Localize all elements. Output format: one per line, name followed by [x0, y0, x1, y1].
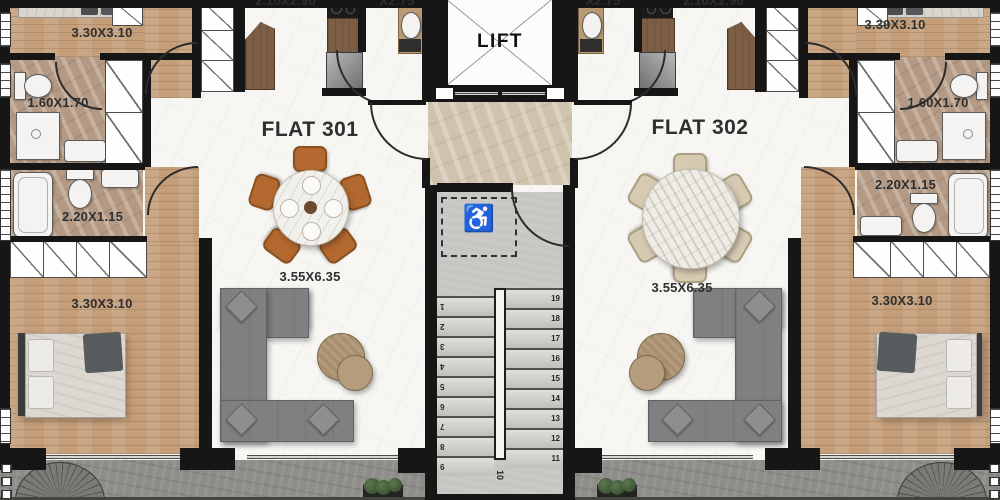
stair-tread: 4: [437, 356, 495, 376]
stairs-stringer: [494, 288, 506, 460]
living-dim-label-left: 3.55X6.35: [260, 269, 360, 284]
window: [990, 12, 1000, 47]
wardrobe-cell: [105, 60, 143, 113]
sink: [896, 140, 938, 162]
wall: [945, 53, 990, 60]
wall: [10, 236, 147, 242]
bathtub: [948, 173, 988, 239]
lift-door-panel: [436, 88, 453, 99]
stair-tread: 18: [505, 308, 563, 328]
window: [990, 63, 1000, 98]
plant-leaf: [388, 478, 402, 492]
bed-bottom-left: [18, 333, 124, 416]
stair-tread-number: 2: [440, 322, 444, 331]
door-arc-utility-left: [336, 50, 388, 105]
wall: [10, 53, 55, 60]
railing-post: [1, 464, 12, 473]
lift-wall-right: [552, 0, 578, 85]
living-dim-label-right: 3.55X6.35: [632, 280, 732, 295]
bathtub-inner: [18, 177, 48, 233]
wall: [180, 448, 235, 470]
stairwell-wall-bottom: [425, 494, 575, 500]
railing-post: [989, 464, 1000, 473]
toilet-bowl: [68, 179, 92, 209]
stairs-flight-down: 191817161514131211: [505, 288, 563, 450]
door-arc-utility-right: [614, 50, 666, 105]
utility-cabinet: [399, 39, 421, 52]
sliding-door: [46, 455, 180, 459]
wardrobe-cell: [923, 240, 957, 278]
wall: [755, 0, 766, 92]
sliding-door: [247, 455, 398, 459]
stair-tread-number: 8: [440, 442, 444, 451]
stairs-flight-up: 123456789: [437, 296, 495, 458]
railing-post: [1, 477, 12, 486]
plate: [302, 222, 321, 241]
shower-drain: [963, 129, 973, 139]
shower-tray: [942, 112, 986, 160]
wall: [358, 0, 366, 52]
stair-tread-number: 7: [440, 422, 444, 431]
stair-tread-number: 15: [551, 374, 560, 383]
stair-tread: 13: [505, 408, 563, 428]
stair-tread-number: 18: [551, 314, 560, 323]
dining-table-right: [642, 169, 740, 269]
bathroom-top-dim-label-right: 1.60X1.70: [892, 95, 984, 110]
wardrobe-cell: [766, 30, 799, 61]
kitchen-tall-cabinet-right: [727, 22, 757, 90]
wall: [634, 0, 642, 52]
hall-wall-right: [570, 158, 578, 188]
stairs-landing-number: 10: [495, 470, 505, 480]
sink: [860, 216, 902, 236]
bed-throw: [83, 332, 124, 374]
kitchen-cabinet-right: [639, 18, 675, 54]
lift-door-track: [502, 92, 545, 95]
bathroom-mid-dim-label-left: 2.20X1.15: [45, 209, 140, 224]
utility-cabinet: [580, 39, 602, 52]
kitchen-tall-cabinet-left: [245, 22, 275, 90]
stair-tread: 6: [437, 396, 495, 416]
bedroom-bottom-dim-label-left: 3.30X3.10: [52, 296, 152, 311]
bed-pillow: [28, 376, 54, 409]
bed-pillow: [946, 376, 972, 409]
door-arc-entry-right: [575, 103, 632, 160]
window: [0, 408, 11, 444]
wardrobe-bath-left: [105, 60, 143, 165]
wall: [10, 163, 145, 170]
window: [0, 169, 11, 241]
wall: [234, 0, 245, 92]
wardrobe-cell: [105, 112, 143, 165]
stair-tread-number: 1: [440, 302, 444, 311]
wardrobe-cell: [201, 60, 234, 92]
wardrobe-cell: [857, 60, 895, 113]
wheelchair-zone: ♿: [441, 197, 517, 257]
sink: [64, 140, 106, 162]
bathtub: [13, 172, 53, 238]
bathroom-mid-dim-label-right: 2.20X1.15: [858, 177, 953, 192]
wardrobe-row-left: [10, 240, 147, 278]
stair-tread: 12: [505, 428, 563, 448]
wall: [765, 448, 820, 470]
stair-tread: 8: [437, 436, 495, 456]
stair-tread-number: 12: [551, 434, 560, 443]
window: [990, 408, 1000, 444]
wardrobe-cell: [853, 240, 891, 278]
bed-throw: [877, 332, 918, 374]
wall: [572, 448, 602, 473]
centerpiece: [304, 201, 317, 214]
railing-post: [989, 490, 1000, 499]
wardrobe-bath-right: [857, 60, 895, 165]
coffee-table-right-small: [629, 355, 665, 391]
wardrobe-cell: [43, 240, 77, 278]
kitchen-dim-label-right: 2.10X2.90: [666, 0, 761, 8]
wardrobe-cell: [10, 240, 44, 278]
shower-drain: [31, 129, 41, 139]
stair-tread: 3: [437, 336, 495, 356]
sliding-door: [602, 455, 753, 459]
utility-counter-left: [398, 6, 424, 54]
bed-headboard: [18, 333, 25, 416]
railing-post: [1, 490, 12, 499]
stair-tread: 17: [505, 328, 563, 348]
dining-table-left: [273, 170, 349, 246]
window: [990, 169, 1000, 241]
toilet-bowl: [912, 203, 936, 233]
utility-dim-label-right: X2.75: [580, 0, 626, 8]
plate: [302, 176, 321, 195]
wardrobe-row-right: [853, 240, 990, 278]
lift-door-panel: [547, 88, 564, 99]
stair-tread-number: 4: [440, 362, 444, 371]
bathroom-top-dim-label-left: 1.60X1.70: [12, 95, 104, 110]
utility-counter-right: [578, 6, 604, 54]
stair-tread: 7: [437, 416, 495, 436]
stairs-landing: 10: [437, 458, 563, 492]
sofa-chaise: [265, 288, 309, 338]
stair-tread-number: 17: [551, 334, 560, 343]
lift-wall-left: [422, 0, 448, 85]
wardrobe-cell: [109, 240, 147, 278]
stair-tread: 1: [437, 296, 495, 316]
window: [0, 12, 11, 47]
coffee-table-left-small: [337, 355, 373, 391]
stair-tread: 19: [505, 288, 563, 308]
bedroom-top-dim-label-right: 3.30X3.10: [845, 17, 945, 32]
wardrobe-cell: [766, 60, 799, 92]
stair-tread: 16: [505, 348, 563, 368]
wardrobe-kitchen-left: [201, 0, 234, 92]
bed-pillow: [946, 339, 972, 372]
plate: [324, 199, 343, 218]
hall-wall-left: [422, 158, 430, 188]
stair-tread-number: 19: [551, 294, 560, 303]
bathtub-inner: [954, 178, 984, 234]
flat-name-left: FLAT 301: [240, 118, 380, 142]
entrance-hall-floor: [428, 102, 572, 185]
stair-tread: 2: [437, 316, 495, 336]
wardrobe-cell: [76, 240, 110, 278]
utility-sink: [401, 12, 421, 39]
stair-tread: 15: [505, 368, 563, 388]
dining-chair: [293, 146, 327, 172]
shower-tray: [16, 112, 60, 160]
stairwell-wall-top: [437, 183, 513, 192]
bedroom-top-dim-label-left: 3.30X3.10: [52, 25, 152, 40]
wardrobe-kitchen-right: [766, 0, 799, 92]
stair-tread-number: 6: [440, 402, 444, 411]
stair-tread-number: 5: [440, 382, 444, 391]
bed-bottom-right: [876, 333, 982, 416]
stair-tread-number: 3: [440, 342, 444, 351]
wardrobe-cell: [857, 112, 895, 165]
sofa-chaise: [693, 288, 737, 338]
wardrobe-cell: [956, 240, 990, 278]
stair-tread-number: 14: [551, 394, 560, 403]
wall: [855, 163, 990, 170]
lift-label: LIFT: [448, 31, 552, 53]
wall: [398, 448, 428, 473]
lift-door-band: [422, 85, 578, 102]
bedroom-bottom-dim-label-right: 3.30X3.10: [852, 293, 952, 308]
wall: [853, 236, 990, 242]
lift-door-track: [455, 92, 498, 95]
plant-leaf: [622, 478, 636, 492]
sink: [101, 169, 139, 188]
stair-tread-number: 16: [551, 354, 560, 363]
railing-post: [989, 477, 1000, 486]
floor-plan: LIFT ♿ 123456789 191817161514131211 10 2…: [0, 0, 1000, 500]
flat-name-right: FLAT 302: [630, 116, 770, 140]
bed-pillow: [28, 339, 54, 372]
utility-sink: [582, 12, 602, 39]
kitchen-dim-label-left: 2.10X2.90: [238, 0, 333, 8]
wardrobe-cell: [890, 240, 924, 278]
sliding-door: [820, 455, 954, 459]
wardrobe-cell: [201, 30, 234, 61]
wall: [788, 238, 801, 460]
stair-tread: 5: [437, 376, 495, 396]
plate: [280, 199, 299, 218]
window: [0, 63, 11, 98]
wall: [199, 238, 212, 460]
stair-tread-number: 13: [551, 414, 560, 423]
utility-dim-label-left: X2.75: [374, 0, 420, 8]
stair-tread: 14: [505, 388, 563, 408]
wheelchair-icon: ♿: [443, 203, 515, 234]
